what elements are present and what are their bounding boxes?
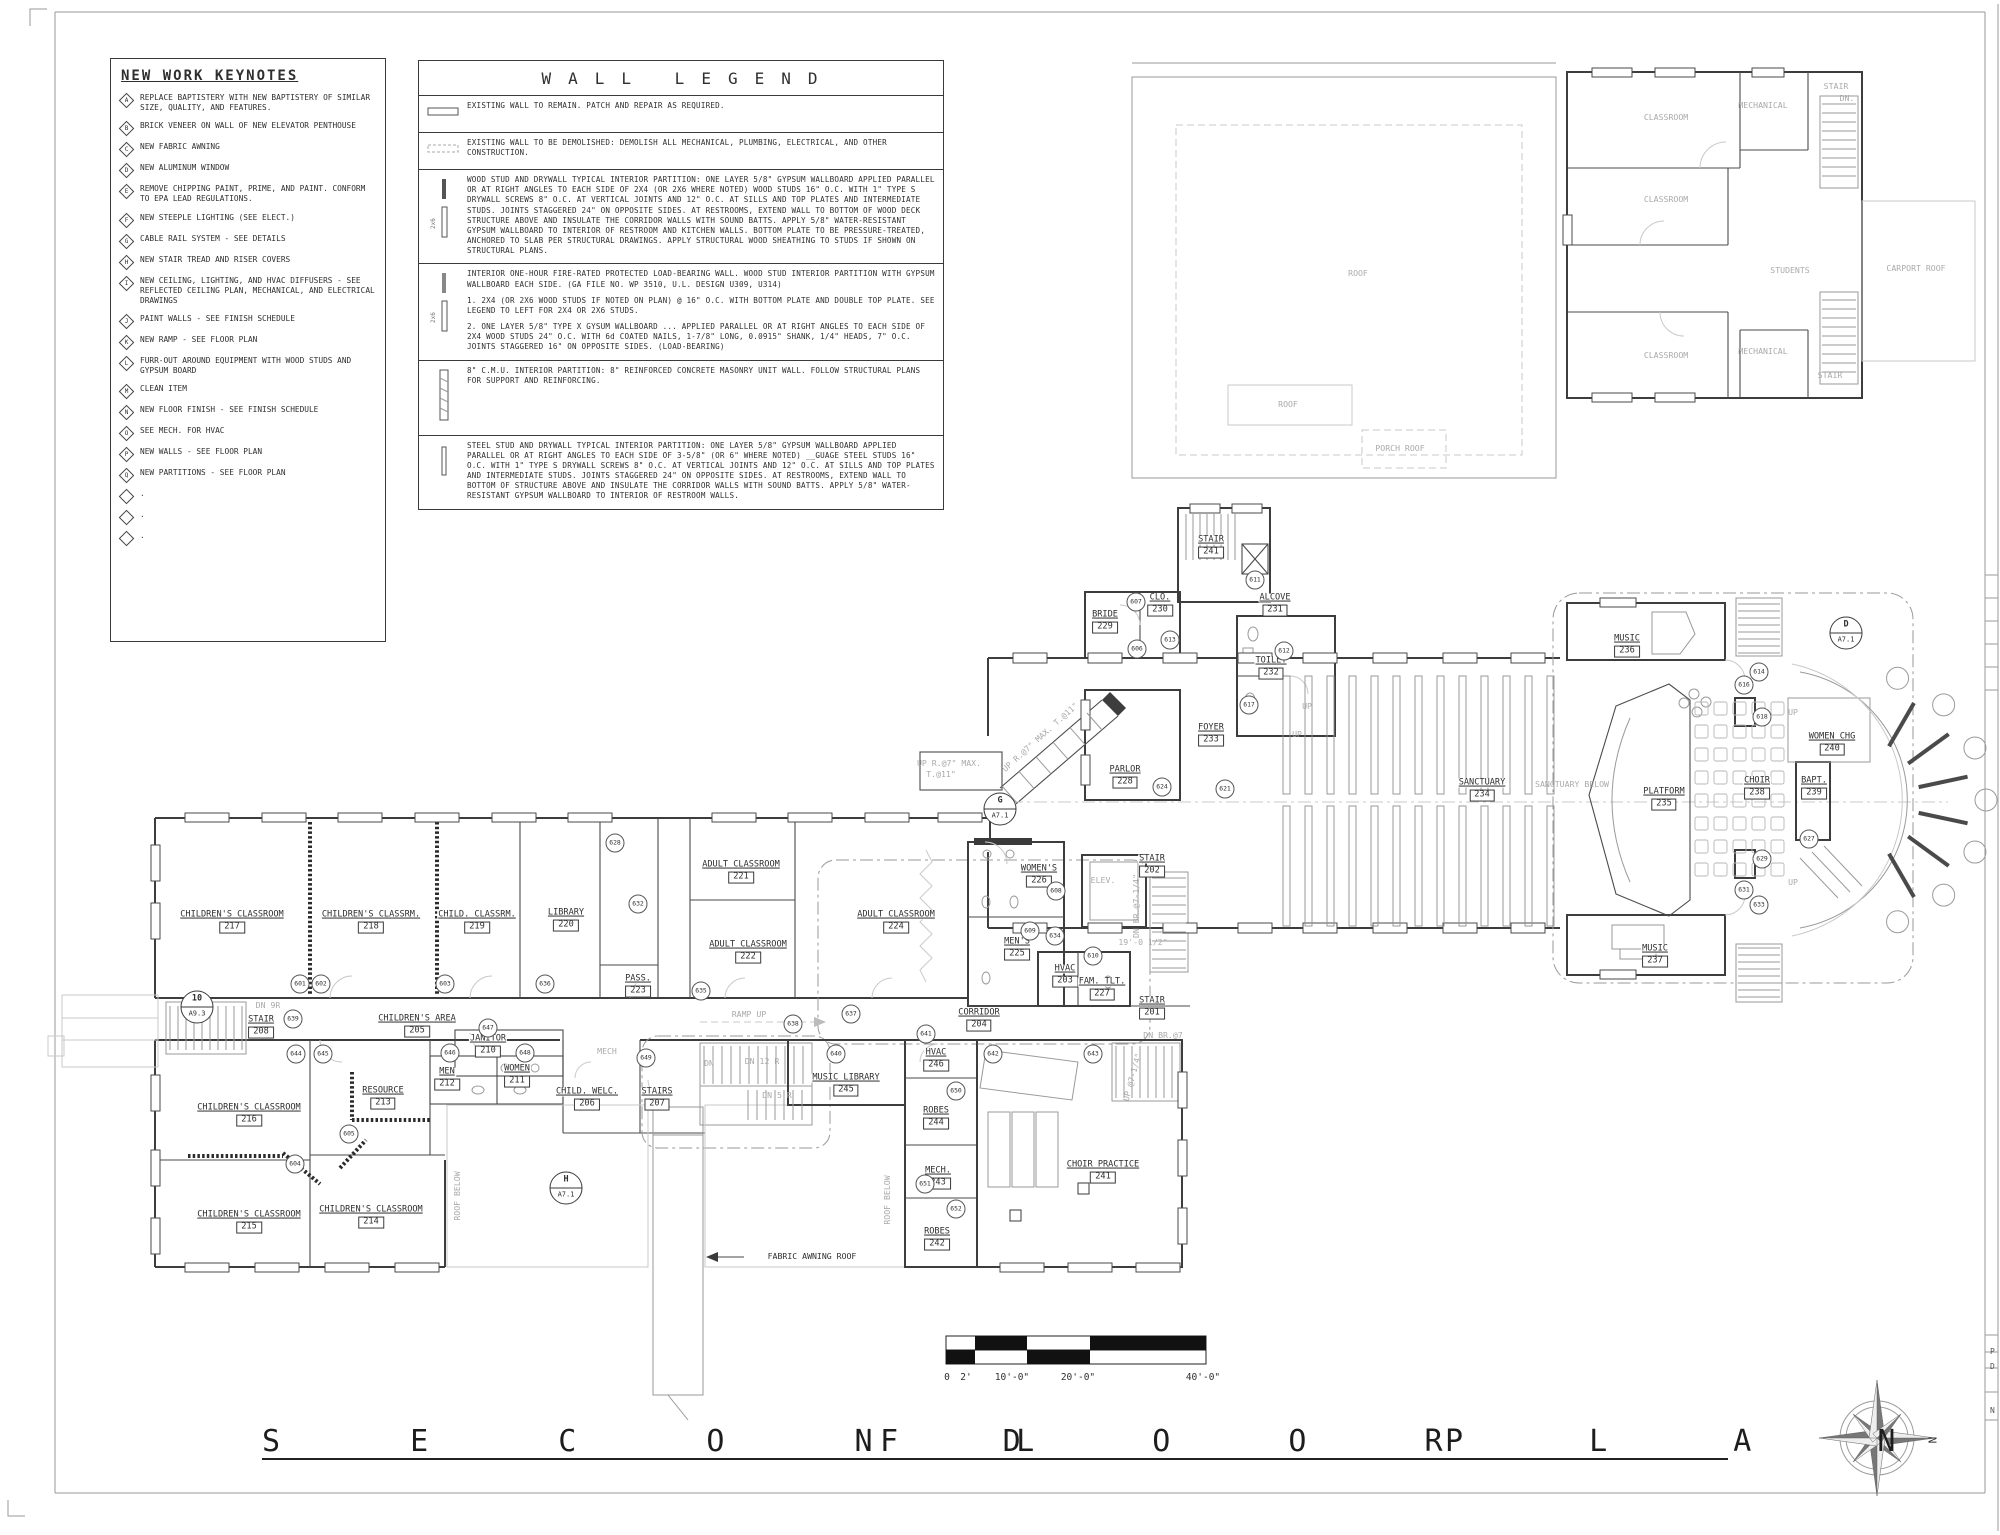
keynote-diamond-icon: G [119,233,135,249]
keynote-text: REMOVE CHIPPING PAINT, PRIME, AND PAINT.… [140,184,375,204]
keynote-item-E: EREMOVE CHIPPING PAINT, PRIME, AND PAINT… [121,184,375,204]
scale-bar [946,1336,1206,1364]
classroom-wing-upper [155,818,990,998]
wall-legend-panel: WALL LEGEND EXISTING WALL TO REMAIN. PAT… [418,60,944,510]
wall-legend-rows: EXISTING WALL TO REMAIN. PATCH AND REPAI… [419,96,943,509]
keynote-text: NEW CEILING, LIGHTING, AND HVAC DIFFUSER… [140,276,375,306]
keynote-item-D: DNEW ALUMINUM WINDOW [121,163,375,176]
keynote-text: SEE MECH. FOR HVAC [140,426,225,439]
keynote-diamond-icon: P [119,447,135,463]
keynote-diamond-icon: M [119,384,135,400]
legend-symbol-existing-icon [425,101,467,125]
keynote-diamond-icon: I [119,275,135,291]
legend-row-demo: EXISTING WALL TO BE DEMOLISHED: DEMOLISH… [419,132,943,169]
keynote-diamond-icon [119,510,135,526]
keynotes-title: NEW WORK KEYNOTES [121,68,375,84]
keynote-item-I: INEW CEILING, LIGHTING, AND HVAC DIFFUSE… [121,276,375,306]
keynote-item-blank-17: . [121,489,375,502]
keynote-text: PAINT WALLS - SEE FINISH SCHEDULE [140,314,295,327]
drawing-sheet: NEW WORK KEYNOTES AREPLACE BAPTISTERY WI… [0,0,2000,1535]
legend-row-existing: EXISTING WALL TO REMAIN. PATCH AND REPAI… [419,96,943,132]
keynote-diamond-icon: K [119,335,135,351]
keynote-diamond-icon: L [119,356,135,372]
keynote-text: FURR-OUT AROUND EQUIPMENT WITH WOOD STUD… [140,356,375,376]
svg-text:2x6: 2x6 [430,312,437,323]
legend-row-fire: 2x6INTERIOR ONE-HOUR FIRE-RATED PROTECTE… [419,263,943,359]
legend-text: STEEL STUD AND DRYWALL TYPICAL INTERIOR … [467,441,935,502]
keynote-text: REPLACE BAPTISTERY WITH NEW BAPTISTERY O… [140,93,375,113]
keynote-text: NEW STEEPLE LIGHTING (SEE ELECT.) [140,213,295,226]
keynote-diamond-icon: J [119,314,135,330]
compass-rose-icon [1819,1380,1935,1496]
keynote-text: BRICK VENEER ON WALL OF NEW ELEVATOR PEN… [140,121,356,134]
keynote-diamond-icon: Q [119,468,135,484]
legend-row-wood: 2x6WOOD STUD AND DRYWALL TYPICAL INTERIO… [419,169,943,263]
keynote-text: CABLE RAIL SYSTEM - SEE DETAILS [140,234,286,247]
keynote-item-N: NNEW FLOOR FINISH - SEE FINISH SCHEDULE [121,405,375,418]
keynote-item-G: GCABLE RAIL SYSTEM - SEE DETAILS [121,234,375,247]
legend-text: WOOD STUD AND DRYWALL TYPICAL INTERIOR P… [467,175,935,256]
roof-strip [1228,385,1352,425]
porch-roof-outline [1362,430,1446,468]
keynote-item-blank-19: . [121,531,375,544]
legend-text: 8" C.M.U. INTERIOR PARTITION: 8" REINFOR… [467,366,935,428]
keynote-item-M: MCLEAN ITEM [121,384,375,397]
keynote-item-F: FNEW STEEPLE LIGHTING (SEE ELECT.) [121,213,375,226]
awning [653,1107,744,1420]
keynotes-list: AREPLACE BAPTISTERY WITH NEW BAPTISTERY … [121,93,375,544]
keynote-text: . [140,510,145,523]
legend-symbol-cmu-icon [425,366,467,428]
legend-symbol-wood-icon: 2x6 [425,175,467,256]
keynote-item-J: JPAINT WALLS - SEE FINISH SCHEDULE [121,314,375,327]
legend-symbol-demo-icon [425,138,467,162]
legend-text: EXISTING WALL TO REMAIN. PATCH AND REPAI… [467,101,725,125]
keynote-text: NEW FABRIC AWNING [140,142,220,155]
keynote-diamond-icon: O [119,426,135,442]
svg-text:2x6: 2x6 [430,218,437,229]
main-roof-outline [1132,63,1556,478]
keynote-diamond-icon: A [119,93,135,109]
keynote-text: NEW FLOOR FINISH - SEE FINISH SCHEDULE [140,405,318,418]
keynote-diamond-icon: B [119,121,135,137]
keynote-item-K: KNEW RAMP - SEE FLOOR PLAN [121,335,375,348]
keynote-diamond-icon: F [119,212,135,228]
keynote-item-A: AREPLACE BAPTISTERY WITH NEW BAPTISTERY … [121,93,375,113]
keynote-diamond-icon [119,531,135,547]
core [700,838,1190,1044]
keynote-text: CLEAN ITEM [140,384,187,397]
keynote-item-B: BBRICK VENEER ON WALL OF NEW ELEVATOR PE… [121,121,375,134]
keynote-diamond-icon: D [119,163,135,179]
keynote-text: NEW ALUMINUM WINDOW [140,163,229,176]
legend-text: EXISTING WALL TO BE DEMOLISHED: DEMOLISH… [467,138,935,162]
legend-text: INTERIOR ONE-HOUR FIRE-RATED PROTECTED L… [467,269,935,352]
keynote-diamond-icon [119,489,135,505]
keynote-item-blank-18: . [121,510,375,523]
keynote-item-L: LFURR-OUT AROUND EQUIPMENT WITH WOOD STU… [121,356,375,376]
keynote-diamond-icon: C [119,142,135,158]
keynote-item-Q: QNEW PARTITIONS - SEE FLOOR PLAN [121,468,375,481]
education-wing [1567,72,1975,398]
legend-row-cmu: 8" C.M.U. INTERIOR PARTITION: 8" REINFOR… [419,360,943,435]
keynote-item-P: PNEW WALLS - SEE FLOOR PLAN [121,447,375,460]
legend-symbol-steel-icon [425,441,467,502]
west-porch [48,995,158,1067]
keynote-diamond-icon: H [119,254,135,270]
keynote-text: NEW STAIR TREAD AND RISER COVERS [140,255,290,268]
keynote-item-C: CNEW FABRIC AWNING [121,142,375,155]
keynote-item-H: HNEW STAIR TREAD AND RISER COVERS [121,255,375,268]
balcony-stair [920,692,1126,804]
legend-symbol-fire-icon: 2x6 [425,269,467,352]
keynote-text: . [140,489,145,502]
keynote-diamond-icon: E [119,184,135,200]
keynote-text: NEW WALLS - SEE FLOOR PLAN [140,447,262,460]
keynote-text: NEW PARTITIONS - SEE FLOOR PLAN [140,468,286,481]
wall-legend-title: WALL LEGEND [419,61,943,96]
keynote-text: NEW RAMP - SEE FLOOR PLAN [140,335,257,348]
keynotes-panel: NEW WORK KEYNOTES AREPLACE BAPTISTERY WI… [110,58,386,642]
legend-row-steel: STEEL STUD AND DRYWALL TYPICAL INTERIOR … [419,435,943,509]
keynote-item-O: OSEE MECH. FOR HVAC [121,426,375,439]
keynote-text: . [140,531,145,544]
keynote-diamond-icon: N [119,405,135,421]
